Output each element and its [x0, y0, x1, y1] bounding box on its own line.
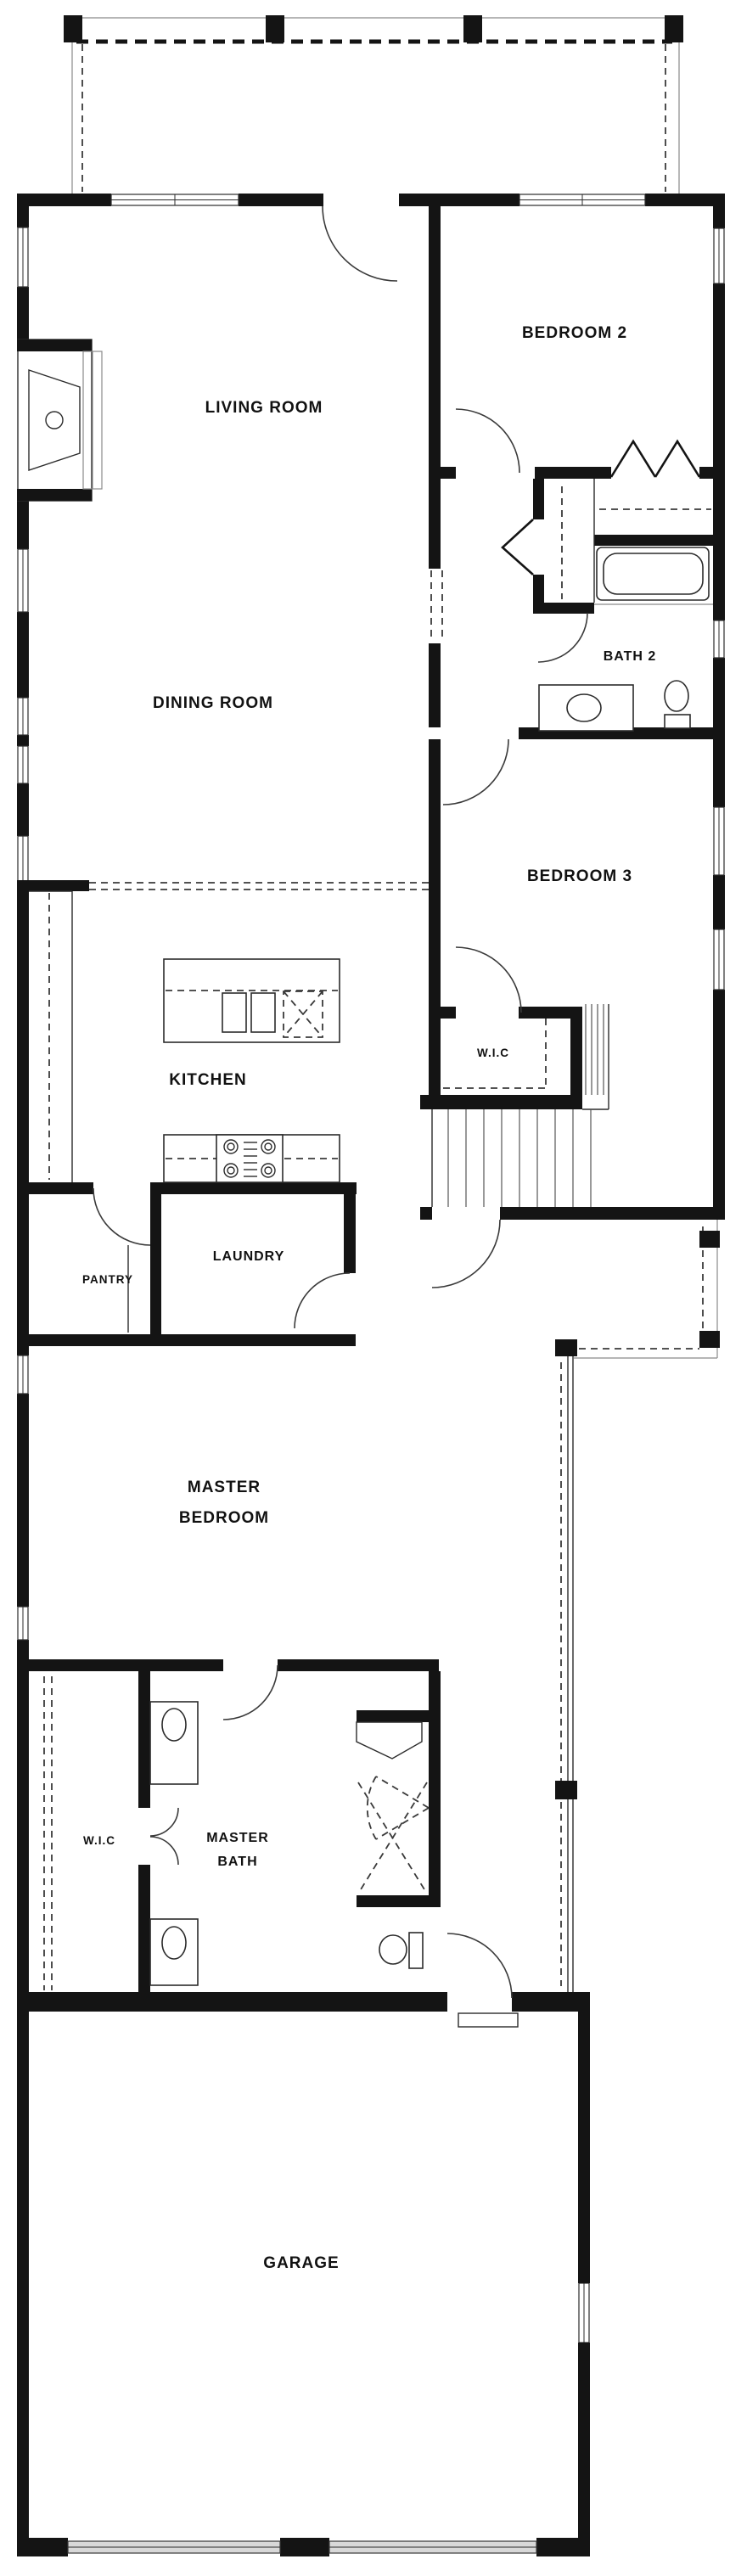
- master-bedroom-label-2: BEDROOM: [179, 1509, 269, 1527]
- floor-plan-page: LIVING ROOM BEDROOM 2 DINING ROOM BATH 2…: [0, 0, 730, 2576]
- bath2-fixtures: [539, 547, 713, 731]
- window: [579, 2283, 589, 2343]
- window: [714, 620, 724, 658]
- porch-post: [266, 15, 284, 42]
- patio-post: [699, 1331, 720, 1348]
- window: [18, 227, 28, 287]
- master-bath-door-swing: [223, 1665, 278, 1720]
- master-bath-fixtures: [150, 1702, 429, 1985]
- window: [111, 194, 239, 205]
- patio-post: [555, 1781, 577, 1799]
- bath2-door-swing: [538, 613, 587, 662]
- floor-plan-drawing: LIVING ROOM BEDROOM 2 DINING ROOM BATH 2…: [0, 0, 730, 2576]
- kitchen-sink: [222, 993, 246, 1032]
- toilet: [379, 1933, 423, 1968]
- window: [18, 746, 28, 783]
- porch-post: [64, 15, 82, 42]
- patio-post: [555, 1339, 577, 1356]
- master-vanity: [150, 1702, 198, 1784]
- entry-step: [458, 2013, 518, 2027]
- wic-bedroom3-door-swing: [456, 947, 521, 1013]
- porch-post: [665, 15, 683, 42]
- side-patio: [555, 1220, 720, 1992]
- front-porch: [64, 15, 683, 194]
- wic-bedroom3-label: W.I.C: [477, 1047, 509, 1059]
- windows: [18, 194, 724, 2343]
- kitchen-island: [164, 959, 340, 1042]
- window: [18, 836, 28, 883]
- master-bedroom-door-swing: [432, 1220, 500, 1288]
- bath2-vanity: [539, 685, 633, 731]
- bath2-label: BATH 2: [604, 649, 657, 664]
- wic-master-double-door: [150, 1837, 178, 1865]
- garage-features: [17, 2013, 590, 2556]
- window: [714, 807, 724, 875]
- garage-door: [68, 2541, 280, 2553]
- pantry-door-swing: [93, 1188, 150, 1245]
- sink: [162, 1927, 186, 1959]
- wic-master-double-door: [150, 1808, 178, 1836]
- laundry-door-swing: [295, 1273, 350, 1328]
- bathtub: [597, 547, 709, 600]
- bedroom3-label: BEDROOM 3: [527, 867, 632, 885]
- window: [18, 1355, 28, 1394]
- bedroom2-label: BEDROOM 2: [522, 324, 627, 342]
- interior-walls: [17, 194, 716, 2538]
- master-vanity: [150, 1919, 198, 1985]
- shower: [357, 1722, 429, 1894]
- master-bedroom-label-1: MASTER: [188, 1479, 261, 1496]
- bedroom2-door-swing: [456, 409, 519, 473]
- garage-door: [329, 2541, 536, 2553]
- garage-label: GARAGE: [263, 2254, 339, 2272]
- patio-post: [699, 1231, 720, 1248]
- window: [18, 698, 28, 735]
- shower-seat: [357, 1722, 422, 1759]
- toilet: [665, 681, 690, 728]
- window: [18, 1607, 28, 1640]
- porch-post: [463, 15, 482, 42]
- kitchen-fixtures: [29, 883, 429, 1333]
- window: [714, 228, 724, 283]
- bedroom2-closet-bifold: [611, 441, 655, 477]
- bedroom3-door-swing: [443, 739, 508, 805]
- laundry-label: LAUNDRY: [213, 1249, 285, 1264]
- garage-entry-door-swing: [447, 1933, 512, 1998]
- pantry-label: PANTRY: [82, 1273, 133, 1286]
- sink: [567, 694, 601, 721]
- window: [18, 549, 28, 612]
- master-bath-label-2: BATH: [217, 1855, 257, 1869]
- window: [519, 194, 645, 205]
- kitchen-sink: [251, 993, 275, 1032]
- dining-room-label: DINING ROOM: [153, 694, 273, 712]
- kitchen-label: KITCHEN: [169, 1071, 246, 1089]
- range-counter: [164, 1135, 340, 1182]
- window: [714, 929, 724, 990]
- linen-closet-bifold: [503, 519, 533, 575]
- sink: [162, 1709, 186, 1741]
- bedroom2-closet-bifold: [655, 441, 699, 477]
- master-bath-label-1: MASTER: [206, 1831, 269, 1845]
- fireplace: [17, 340, 102, 501]
- wic-master-label: W.I.C: [83, 1834, 115, 1847]
- front-door-swing: [323, 206, 397, 281]
- living-room-label: LIVING ROOM: [205, 399, 323, 417]
